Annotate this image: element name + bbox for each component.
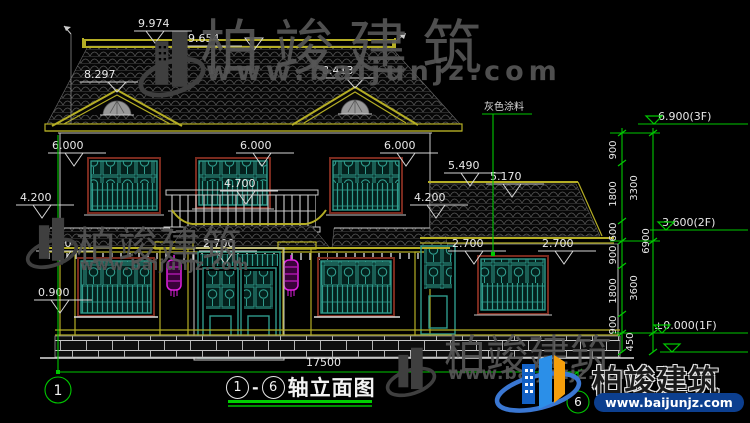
dim-ridge-b: 9.654 bbox=[188, 32, 220, 45]
second-floor-window-right bbox=[326, 158, 406, 215]
wing-roof bbox=[420, 182, 614, 243]
lantern-left bbox=[167, 255, 181, 297]
level-3f-label: 6.900(3F) bbox=[658, 110, 711, 123]
dim-eave-right: 6.000 bbox=[384, 139, 416, 152]
dim-eave-left: 6.000 bbox=[52, 139, 84, 152]
drawing-title: 1 - 6 轴立面图 bbox=[226, 372, 376, 402]
title-axis-circle-1: 1 bbox=[226, 376, 249, 399]
elevation-markers: 6.900(3F) 3.600(2F) ±0.000(1F) bbox=[638, 110, 748, 352]
dim-2700-d: 2.700 bbox=[542, 237, 574, 250]
dim-wing-b: 5.170 bbox=[490, 170, 522, 183]
gray-paint-label: 灰色涂料 bbox=[484, 100, 524, 113]
title-axis-circle-6: 6 bbox=[262, 376, 285, 399]
lantern-right bbox=[284, 255, 298, 297]
chain-seg-900b: 900 bbox=[608, 245, 619, 264]
balcony-railing bbox=[164, 190, 320, 232]
second-floor-window-left bbox=[84, 158, 164, 215]
dim-2700-a: 2.700 bbox=[40, 237, 72, 250]
dim-2700-c: 2.700 bbox=[452, 237, 484, 250]
dim-total-width: 17500 bbox=[306, 356, 341, 369]
chain-seg-900a: 900 bbox=[608, 140, 619, 159]
dim-gable-right: 8.413 bbox=[322, 64, 354, 77]
wing-window bbox=[474, 256, 552, 315]
dim-0900: 0.900 bbox=[38, 286, 70, 299]
cad-elevation-screenshot: 9.974 9.654 8.297 8.413 6.000 6.000 6.00… bbox=[0, 0, 750, 423]
dim-4200-left: 4.200 bbox=[20, 191, 52, 204]
company-logo: 柏竣建筑 www.baijunjz.com bbox=[492, 352, 750, 422]
wing-door bbox=[421, 246, 455, 334]
first-floor-window-left bbox=[74, 258, 158, 317]
chain-total-6900: 6900 bbox=[641, 228, 652, 253]
chain-seg-1800b: 1800 bbox=[608, 278, 619, 303]
chain-seg-900c: 900 bbox=[608, 315, 619, 334]
title-separator: - bbox=[252, 378, 259, 397]
chain-group-3600: 3600 bbox=[629, 275, 640, 300]
logo-url-text: www.baijunjz.com bbox=[594, 393, 744, 412]
right-dimension-chain: 900 1800 600 900 1800 900 450 3300 3600 … bbox=[608, 128, 660, 355]
chain-seg-1800a: 1800 bbox=[608, 181, 619, 206]
dim-4200-right: 4.200 bbox=[414, 191, 446, 204]
chain-seg-600: 600 bbox=[608, 222, 619, 241]
dim-2700-b: 2.700 bbox=[203, 237, 235, 250]
axis-bubble-1: 1 bbox=[54, 383, 63, 399]
chain-group-3300: 3300 bbox=[629, 175, 640, 200]
dim-ridge-a: 9.974 bbox=[138, 17, 170, 30]
dim-4700: 4.700 bbox=[224, 177, 256, 190]
chain-seg-450: 450 bbox=[625, 332, 636, 351]
title-label: 轴立面图 bbox=[288, 372, 376, 402]
company-logo-icon bbox=[492, 352, 588, 414]
title-underline-primary bbox=[228, 400, 372, 403]
dim-gable-left: 8.297 bbox=[84, 68, 116, 81]
dim-wing-a: 5.490 bbox=[448, 159, 480, 172]
title-underline-secondary bbox=[228, 405, 372, 407]
first-floor-window-right bbox=[314, 258, 400, 317]
dim-eave-center: 6.000 bbox=[240, 139, 272, 152]
